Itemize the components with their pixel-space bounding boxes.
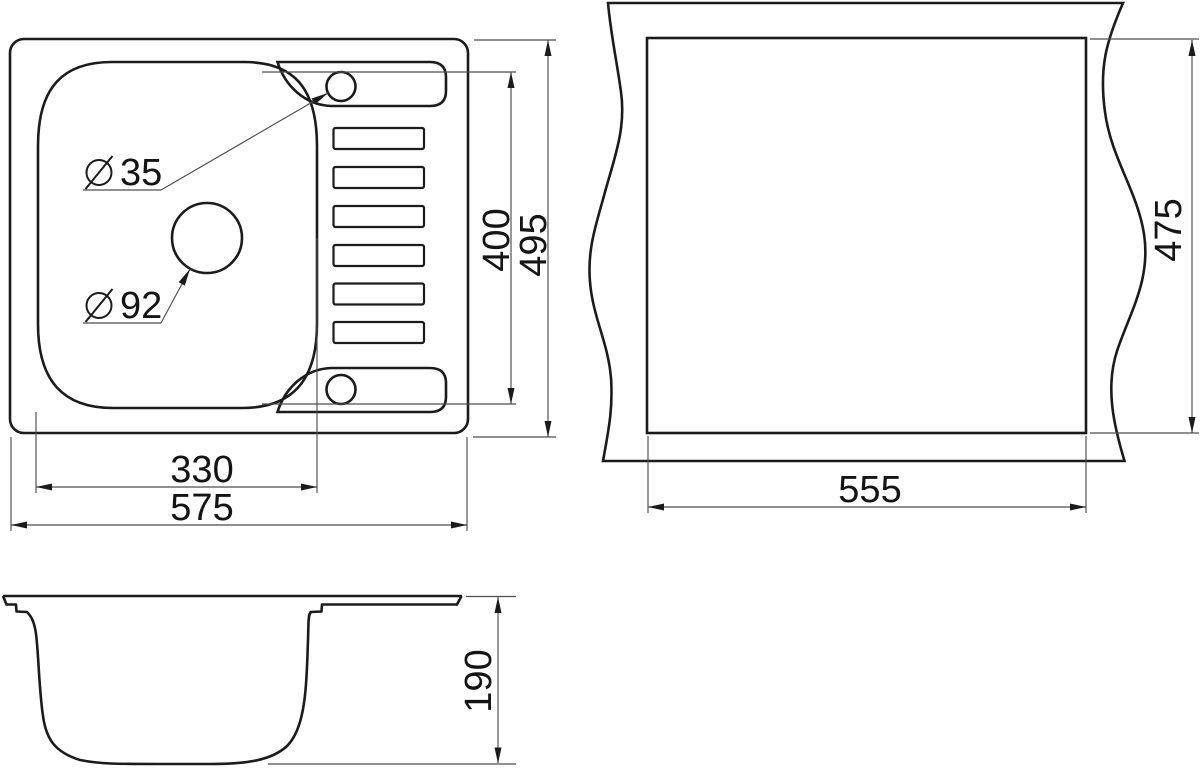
countertop-cutout-view: 555 475 [589,3,1199,513]
dimension-arrow [545,40,552,56]
dimension-arrow [1070,504,1086,511]
dimension-value: 555 [838,469,901,511]
dimension-value: 330 [170,449,233,491]
drainboard-rib [334,284,425,305]
dimension-overall-width: 575 [11,437,467,531]
drainboard-rib [334,322,425,343]
leader-faucet-diameter: 35 [83,90,330,194]
dimension-arrow [508,388,515,404]
faucet-platform-bottom [278,368,447,412]
dimension-arrow [495,748,502,764]
dimension-arrow [508,72,515,88]
sink-top-view: 35 92 330 [10,39,556,531]
sink-bowl-outline [38,62,317,408]
sink-profile [3,596,462,764]
leader-line [161,93,328,190]
drawing-canvas: 35 92 330 [0,0,1200,772]
dimension-arrow [648,504,664,511]
dimension-bowl-width: 330 [36,238,317,493]
sink-side-view: 190 [3,596,516,764]
cutout-rectangle [647,38,1086,433]
dimension-value: 475 [1148,198,1190,261]
dimension-value: 495 [513,213,555,276]
dimension-value: 400 [476,208,518,271]
dimension-arrow [36,484,52,491]
dimension-arrow [301,484,317,491]
drain-hole [172,203,242,273]
faucet-hole-top [327,72,356,101]
dimension-value: 190 [458,649,500,712]
drain-diameter-label: 92 [120,285,162,327]
dimension-arrow [11,522,27,529]
dimension-arrow [545,421,552,437]
drainboard-rib [334,245,425,266]
drainboard-ribs [334,128,425,343]
dimension-right-section: 400 [262,72,518,404]
dimension-arrow [1189,40,1196,56]
dimension-value: 575 [170,487,233,529]
dimension-arrow [1189,417,1196,433]
faucet-hole-bottom [327,375,356,404]
faucet-diameter-label: 35 [120,152,162,194]
sink-technical-drawing: 35 92 330 [0,0,1200,772]
faucet-platform-top [278,62,447,106]
sink-outer-rim [10,39,468,433]
dimension-arrow [451,522,467,529]
drainboard-rib [334,167,425,188]
leader-drain-diameter: 92 [83,267,193,327]
drainboard-rib [334,206,425,227]
dimension-cutout-width: 555 [648,436,1086,513]
dimension-arrow [495,597,502,613]
drainboard-rib [334,128,425,149]
countertop-outline [589,3,1145,461]
